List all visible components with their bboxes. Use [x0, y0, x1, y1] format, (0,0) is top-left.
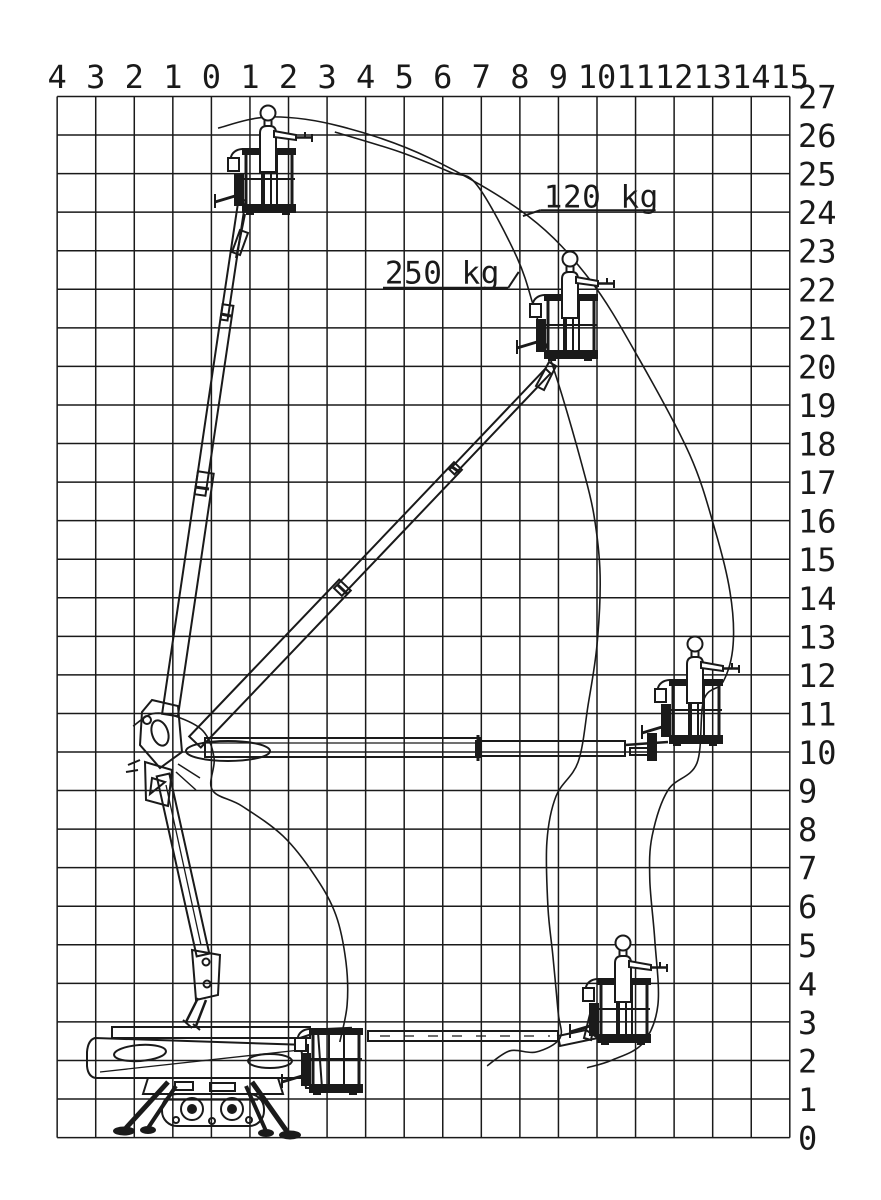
x-axis-label: 14: [732, 58, 771, 96]
envelope-curve-3: [133, 713, 348, 1042]
y-axis-label: 10: [798, 734, 837, 772]
y-axis-label: 11: [798, 695, 837, 733]
machine-stowed: [87, 1027, 362, 1139]
load-labels: 120 kg250 kg: [383, 180, 659, 292]
x-axis-label: 10: [578, 58, 617, 96]
y-axis-label: 18: [798, 426, 837, 464]
y-axis-label: 6: [798, 888, 817, 926]
x-axis-label: 5: [395, 58, 414, 96]
x-axis-label: 8: [510, 58, 529, 96]
working-envelope-diagram: 120 kg250 kg 43210123456789101112131415 …: [0, 0, 881, 1200]
x-axis-label: 2: [279, 58, 298, 96]
x-axis-label: 7: [472, 58, 491, 96]
y-axis-label: 12: [798, 657, 837, 695]
x-axis-label: 12: [655, 58, 694, 96]
boom-position-low: [368, 936, 668, 1047]
grid: [57, 96, 790, 1137]
x-axis-label: 0: [202, 58, 221, 96]
y-axis-label: 26: [798, 117, 837, 155]
x-axis-label: 1: [240, 58, 259, 96]
x-axis-label: 3: [317, 58, 336, 96]
y-axis-label: 25: [798, 156, 837, 194]
diagram-canvas: 120 kg250 kg 43210123456789101112131415 …: [0, 0, 881, 1200]
x-axis-label: 1: [163, 58, 182, 96]
stowed-basket: [282, 1029, 362, 1094]
lower-arm: [157, 774, 220, 1030]
boom-position-diagonal: [189, 252, 615, 748]
y-axis-label: 22: [798, 271, 837, 309]
y-axis-label: 8: [798, 811, 817, 849]
y-axis-label: 21: [798, 310, 837, 348]
y-axis-label: 20: [798, 348, 837, 386]
y-axis-label: 1: [798, 1081, 817, 1119]
y-axis-label: 0: [798, 1120, 817, 1158]
y-axis-label: 4: [798, 965, 817, 1003]
x-axis-label: 4: [356, 58, 375, 96]
y-axis-label: 5: [798, 927, 817, 965]
y-axis-label: 23: [798, 233, 837, 271]
y-axis-label: 13: [798, 618, 837, 656]
y-axis-label: 2: [798, 1042, 817, 1080]
boom-position-up: [162, 106, 313, 717]
y-axis-label: 9: [798, 773, 817, 811]
label-120kg: 120 kg: [544, 180, 659, 216]
x-axis-label: 2: [125, 58, 144, 96]
y-axis-label: 16: [798, 503, 837, 541]
y-axis-label: 15: [798, 541, 837, 579]
label-250kg-leader: [508, 272, 518, 288]
boom-position-horizontal: [186, 637, 740, 762]
y-axis-label: 14: [798, 580, 837, 618]
y-axis-label: 19: [798, 387, 837, 425]
x-axis-label: 3: [86, 58, 105, 96]
x-axis-labels: 43210123456789101112131415: [48, 58, 810, 96]
label-250kg: 250 kg: [385, 255, 500, 291]
y-axis-label: 24: [798, 194, 837, 232]
x-axis-label: 4: [48, 58, 67, 96]
y-axis-label: 17: [798, 464, 837, 502]
x-axis-label: 13: [693, 58, 732, 96]
label-120kg-leader: [523, 210, 540, 216]
y-axis-label: 7: [798, 850, 817, 888]
y-axis-labels: 2726252423222120191817161514131211109876…: [798, 78, 837, 1157]
x-axis-label: 9: [549, 58, 568, 96]
y-axis-label: 3: [798, 1004, 817, 1042]
x-axis-label: 6: [433, 58, 452, 96]
x-axis-label: 11: [616, 58, 655, 96]
y-axis-label: 27: [798, 78, 837, 116]
